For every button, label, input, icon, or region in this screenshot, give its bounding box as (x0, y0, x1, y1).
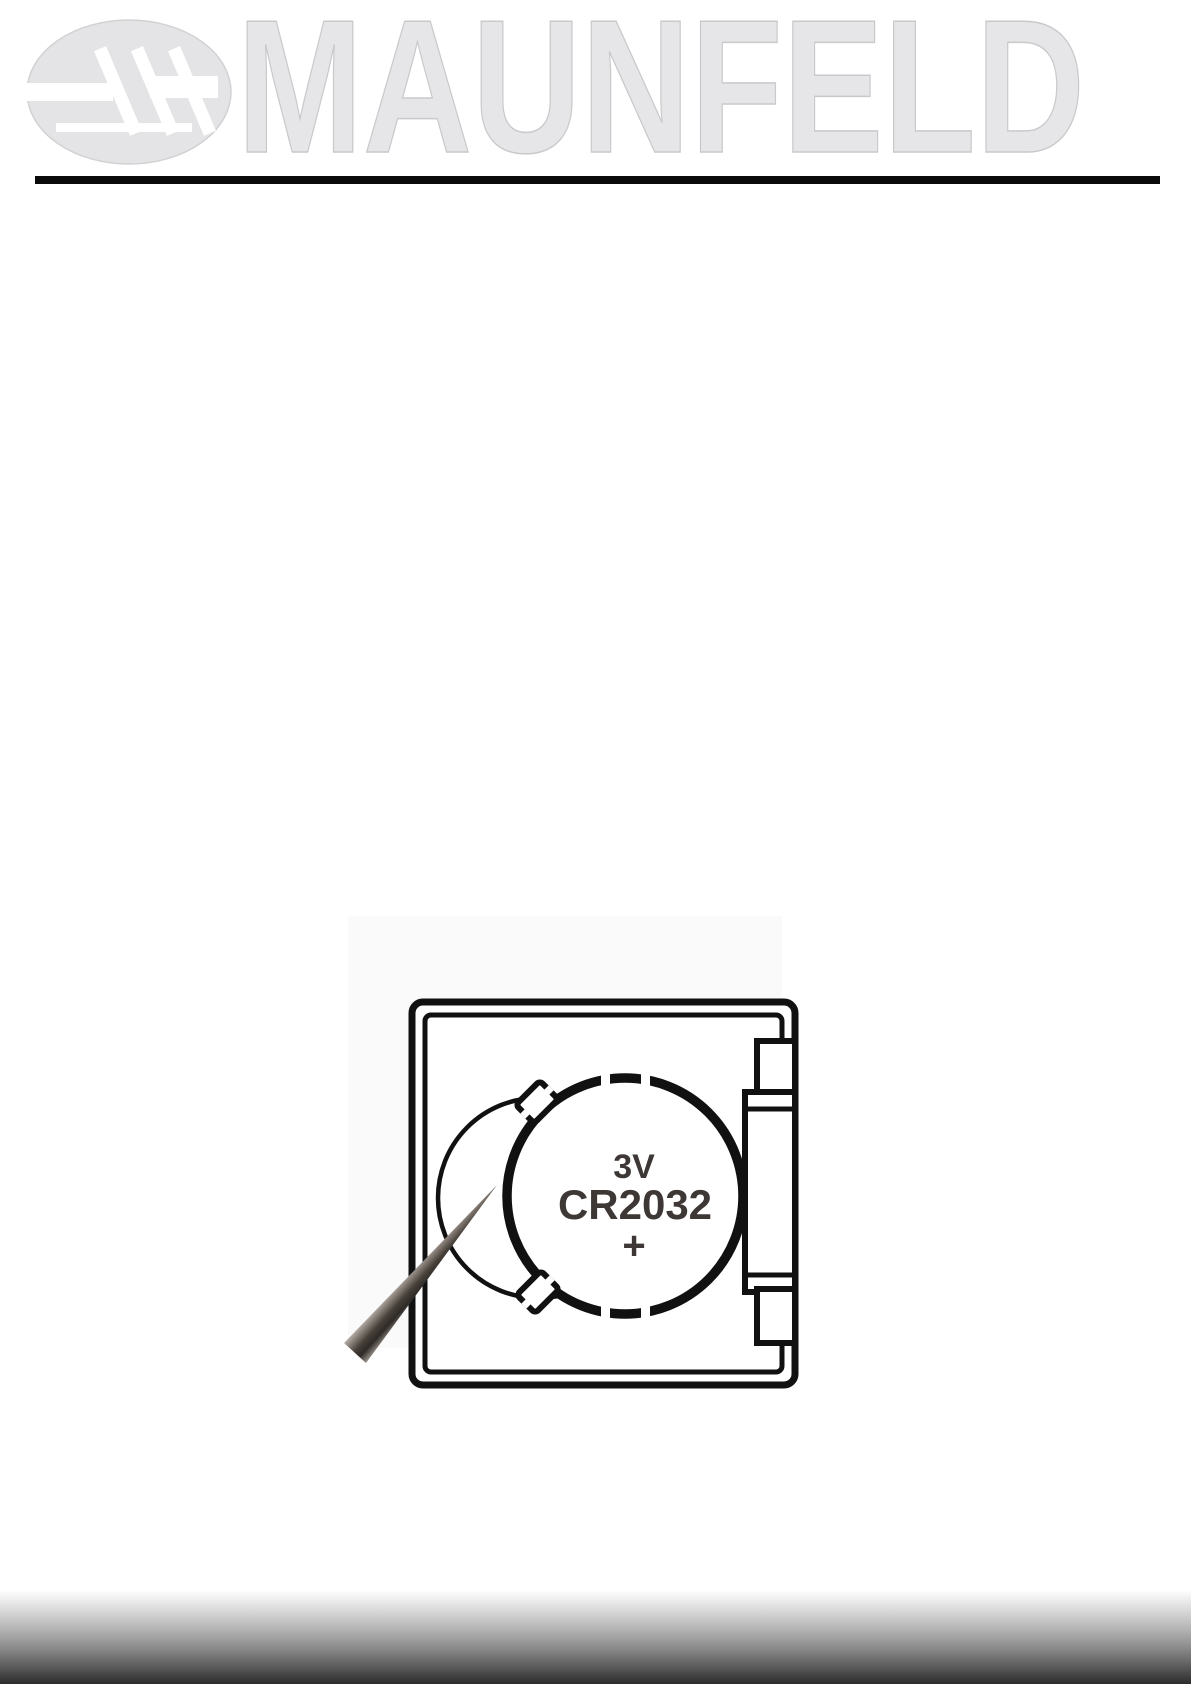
battery-polarity-label: + (622, 1224, 645, 1268)
header-divider (35, 176, 1160, 184)
brand-logo-mark-icon (0, 20, 231, 164)
brand-wordmark: MAUNFELD (237, 0, 1085, 193)
manual-page: MAUNFELD (0, 0, 1191, 1684)
footer-gradient-bar (0, 1590, 1191, 1684)
battery-model-label: CR2032 (558, 1181, 712, 1228)
battery-diagram: 3V CR2032 + (325, 895, 810, 1395)
brand-logo: MAUNFELD (0, 0, 1191, 200)
